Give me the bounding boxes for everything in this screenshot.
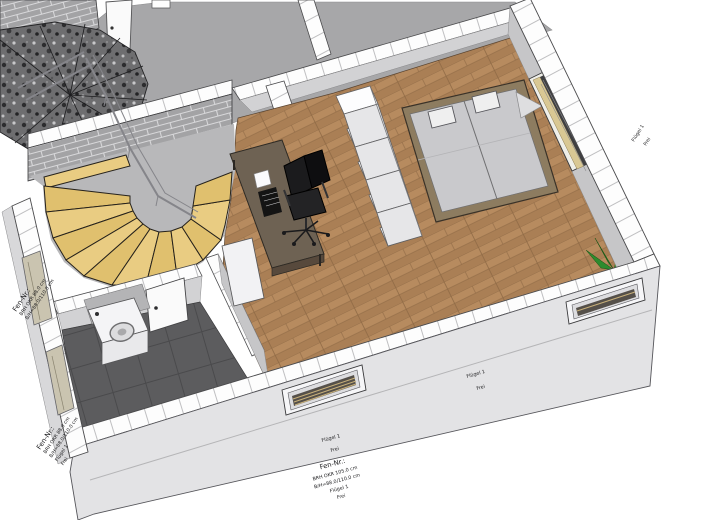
annotation-line: Frei bbox=[336, 493, 346, 501]
label-window-right-wall: Flügel 1 Frei bbox=[631, 124, 653, 147]
wing-label: Flügel 1 bbox=[631, 124, 646, 143]
door-handle-icon bbox=[110, 26, 113, 29]
floorplan-3d-view: Fen-Nr.: BRH OKR 88.0 cm B/H=88.0/110.0 … bbox=[0, 0, 705, 520]
washing-machine-knob-icon bbox=[95, 312, 99, 316]
state-label: Frei bbox=[643, 137, 653, 147]
bathroom-door-handle-icon bbox=[154, 306, 158, 310]
floorplan-scene: Fen-Nr.: BRH OKR 88.0 cm B/H=88.0/110.0 … bbox=[0, 0, 705, 520]
upper-wall-box bbox=[152, 0, 170, 8]
